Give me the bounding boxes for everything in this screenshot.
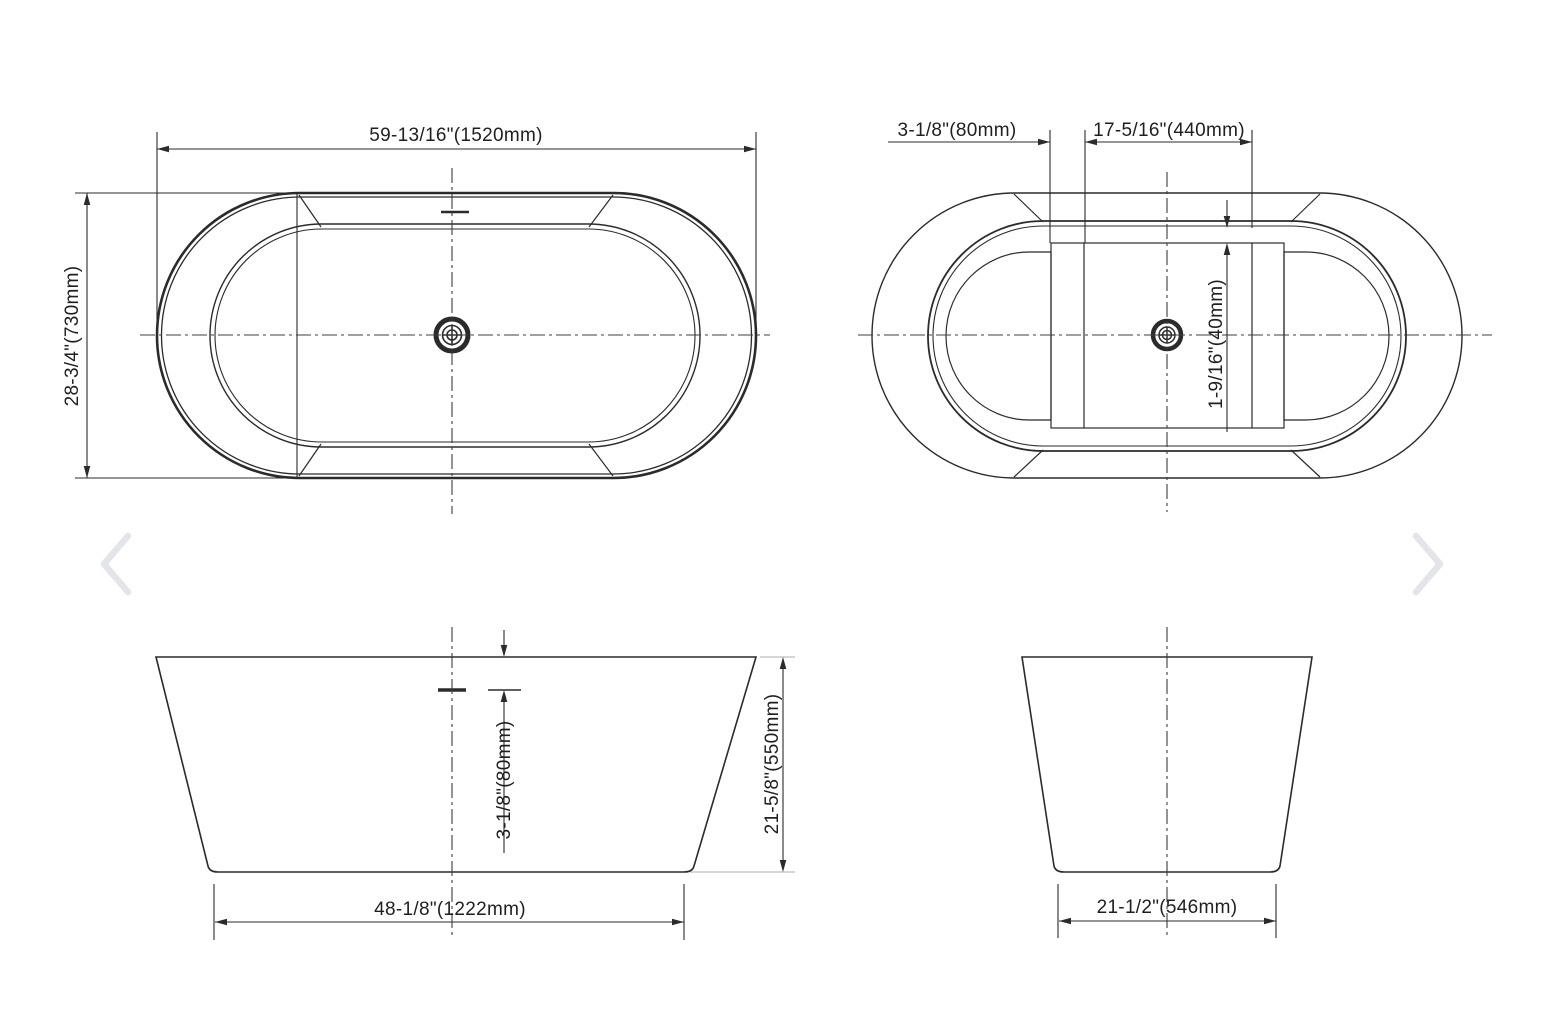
dim-label-side-base: 21-1/2"(546mm) [1097,897,1238,918]
carousel-prev-button[interactable] [84,522,148,606]
view-underside [858,172,1492,512]
dim-label-plan-depth: 28-3/4"(730mm) [62,266,83,407]
chevron-right-icon [1404,528,1452,600]
chevron-left-icon [92,528,140,600]
carousel-next-button[interactable] [1396,522,1460,606]
dim-plan-width [157,132,756,330]
dim-label-underside-rim: 1-9/16"(40mm) [1206,279,1227,409]
view-side-elevation [1022,627,1312,936]
dim-label-underside-ledge: 3-1/8"(80mm) [897,120,1016,141]
bathtub-dimension-drawing: 59-13/16"(1520mm) 28-3/4"(730mm) [0,0,1545,1034]
base-pad-right [1284,252,1389,420]
base-pad-left [946,252,1051,420]
centerlines-underside [858,172,1492,512]
dim-label-underside-panel: 17-5/16"(440mm) [1093,120,1245,141]
view-front-elevation [156,627,756,936]
product-drawing-viewer: 59-13/16"(1520mm) 28-3/4"(730mm) [0,0,1545,1034]
view-top-plan [140,168,770,514]
dim-label-front-base: 48-1/8"(1222mm) [374,899,526,920]
dim-label-front-overflow: 3-1/8"(80mm) [494,720,515,839]
dim-label-front-height: 21-5/8"(550mm) [762,694,783,835]
dim-label-plan-width: 59-13/16"(1520mm) [369,125,542,146]
